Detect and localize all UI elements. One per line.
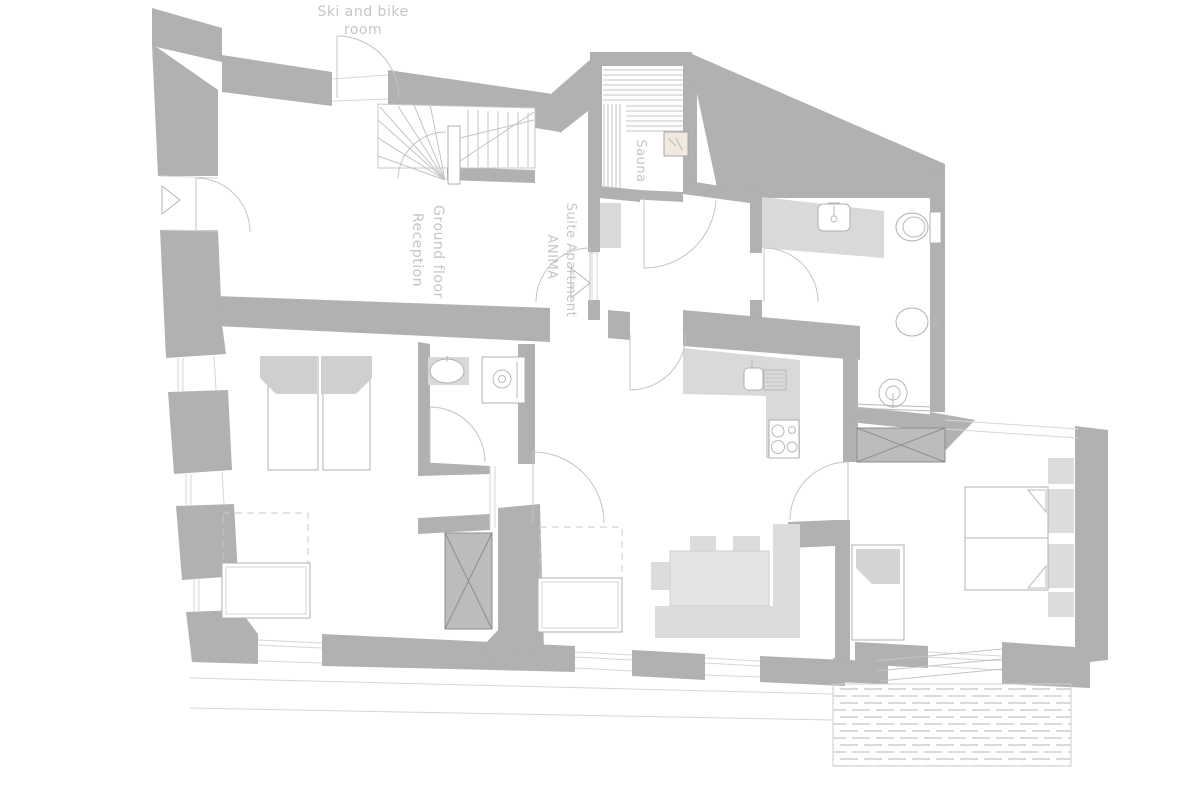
dining-chair-2 bbox=[733, 536, 760, 551]
wall-left-pier-2 bbox=[160, 230, 226, 358]
wall-bottom-pier-3 bbox=[760, 656, 845, 686]
wall-hall-top-stub bbox=[600, 186, 640, 202]
ground-line-2 bbox=[190, 708, 833, 720]
headboard-1 bbox=[1048, 489, 1074, 533]
sauna-bench-lower-slats bbox=[626, 106, 683, 131]
label-reception: Reception bbox=[409, 213, 425, 287]
dining-chair-1 bbox=[690, 536, 716, 551]
window-left-2 bbox=[186, 472, 224, 505]
shower-symbol-main bbox=[853, 379, 933, 411]
wall-sauna-top bbox=[590, 52, 692, 66]
label-suite-apartment: Suite Apartment bbox=[563, 203, 578, 317]
wall-passage-bottom-stub bbox=[418, 514, 490, 534]
window-left-1 bbox=[178, 356, 216, 391]
wall-living-right-lower bbox=[835, 520, 850, 662]
wall-reception-bottom bbox=[215, 296, 550, 342]
door-bathroom-main bbox=[764, 248, 818, 302]
living-room-bed bbox=[538, 527, 622, 632]
ground-line-1 bbox=[190, 678, 833, 694]
daybed bbox=[222, 563, 310, 618]
bedroom-left bbox=[222, 356, 372, 618]
wall-left-pier-1 bbox=[152, 44, 218, 176]
floor-plan-svg: Ski and bike room Ground floor Reception… bbox=[0, 0, 1200, 800]
label-anima: ANIMA bbox=[544, 234, 559, 279]
window-bottom-1 bbox=[258, 640, 322, 663]
stairs-newel bbox=[448, 126, 460, 184]
small-washbasin-symbol bbox=[430, 359, 464, 383]
door-hall-living bbox=[630, 334, 686, 390]
dining-table bbox=[670, 551, 769, 606]
dining-area bbox=[651, 524, 800, 638]
wall-reception-right-lower bbox=[588, 300, 600, 320]
entry-arrow-left bbox=[162, 186, 180, 214]
wall-hall-bath-divider-top bbox=[750, 194, 762, 253]
door-bathroom-small bbox=[430, 407, 485, 462]
headboard-2 bbox=[1048, 544, 1074, 588]
wall-bedroom2-right bbox=[1075, 426, 1108, 662]
label-ski-bike-room-line2: room bbox=[344, 22, 382, 38]
wardrobe-symbol bbox=[857, 428, 945, 462]
wall-terrace-pier-right bbox=[1002, 642, 1090, 688]
living-bed bbox=[538, 578, 622, 632]
terrace-paving bbox=[833, 684, 1071, 766]
bathroom-small bbox=[428, 356, 525, 403]
dining-chair-3 bbox=[651, 562, 670, 590]
toilet-symbol bbox=[896, 212, 941, 243]
sauna-bench-upper-slats bbox=[603, 70, 683, 100]
chimney-symbol bbox=[445, 533, 492, 629]
kitchen-sink-symbol bbox=[744, 368, 763, 390]
kitchen bbox=[683, 348, 800, 458]
cooktop-symbol bbox=[769, 420, 799, 458]
window-bottom-2 bbox=[575, 652, 632, 671]
hallway bbox=[600, 203, 621, 248]
hall-closet bbox=[600, 203, 621, 248]
living-bed-foldout bbox=[540, 527, 622, 578]
floor-plan-page: Ski and bike room Ground floor Reception… bbox=[0, 0, 1200, 800]
wall-hall-bath-divider-bottom bbox=[750, 300, 762, 318]
wall-top-band-left bbox=[222, 55, 332, 106]
label-ski-bike-room-line1: Ski and bike bbox=[317, 4, 408, 20]
label-sauna: Sauna bbox=[633, 139, 648, 182]
door-bedroom-right bbox=[790, 462, 848, 520]
wall-bottom-pier-2 bbox=[632, 650, 705, 680]
wall-reception-bottom-right bbox=[608, 310, 630, 340]
wall-passage-top-stub bbox=[418, 462, 490, 476]
label-ground-floor: Ground floor bbox=[430, 205, 446, 299]
door-entry-left bbox=[196, 178, 250, 232]
sauna-heater-symbol bbox=[664, 132, 688, 156]
nightstand-1 bbox=[1048, 458, 1074, 484]
door-hall-top bbox=[644, 196, 716, 268]
wall-left-pier-3 bbox=[168, 390, 232, 474]
bedroom-right bbox=[852, 458, 1074, 640]
wall-reception-right-upper bbox=[588, 98, 600, 252]
sauna-side-slats bbox=[604, 104, 620, 188]
wall-bathroom-right bbox=[930, 172, 945, 412]
wall-top-right-slant bbox=[692, 54, 945, 198]
window-bottom-3 bbox=[705, 658, 760, 677]
nightstand-2 bbox=[1048, 592, 1074, 617]
shower-symbol-small bbox=[482, 357, 525, 403]
